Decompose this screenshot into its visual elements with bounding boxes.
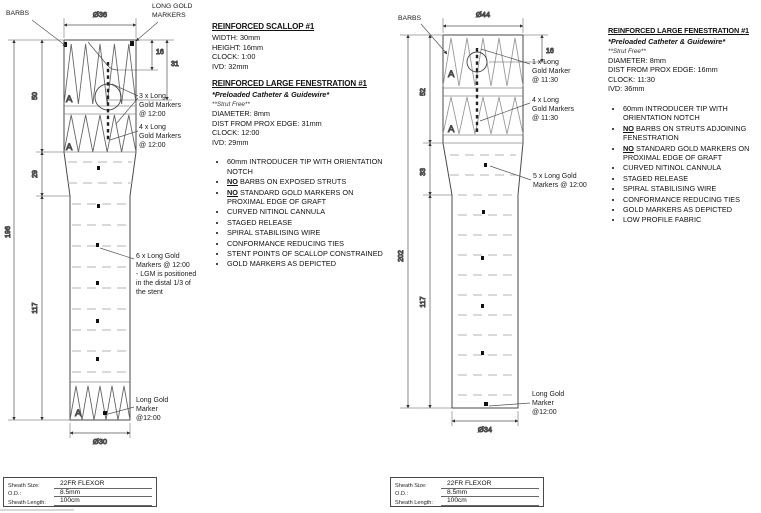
annotation-1x-marker: 1 x Long Gold Marker @ 11:30: [532, 58, 571, 85]
scallop-spec-title: REINFORCED SCALLOP #1: [212, 22, 392, 31]
dim-fen-height: 16: [546, 48, 554, 55]
right-gold-markers: [481, 163, 488, 406]
spec-line: DIAMETER: 8mm: [212, 109, 392, 119]
spec-line: IVD: 29mm: [212, 138, 392, 148]
dim-right-bottom-diameter: Ø34: [478, 425, 492, 434]
left-spec-block: REINFORCED SCALLOP #1 WIDTH: 30mmHEIGHT:…: [212, 22, 392, 270]
sheath-row-value: 100cm: [54, 497, 152, 506]
strut-label-a: A: [448, 124, 455, 135]
right-fenestration-spec-title: REINFORCED LARGE FENESTRATION #1: [608, 26, 760, 35]
sheath-table-row: Sheath Length: 100cm: [8, 497, 152, 506]
annotation-5x-markers: 5 x Long Gold Markers @ 12:00: [533, 172, 587, 190]
feature-bullet: NO STANDARD GOLD MARKERS ON PROXIMAL EDG…: [227, 188, 392, 207]
dim-right-seg117: 117: [420, 296, 427, 307]
annotation-3x-markers: 3 x Long Gold Markers @ 12:00: [139, 92, 181, 119]
sheath-row-value: 22FR FLEXOR: [441, 480, 539, 489]
feature-bullet: STENT POINTS OF SCALLOP CONSTRAINED: [227, 249, 392, 258]
right-spec-block: REINFORCED LARGE FENESTRATION #1 *Preloa…: [608, 26, 760, 226]
feature-bullet: GOLD MARKERS AS DEPICTED: [227, 259, 392, 268]
annotation-4x-markers: 4 x Long Gold Markers @ 12:00: [139, 123, 181, 150]
dim-left-seg29: 29: [32, 170, 39, 178]
dim-left-seg117: 117: [32, 302, 39, 313]
feature-bullet: NO BARBS ON STRUTS ADJOINING FENESTRATIO…: [623, 124, 760, 143]
right-fenestration-spec-lines: DIAMETER: 8mmDIST FROM PROX EDGE: 16mmCL…: [608, 56, 760, 94]
sheath-table-row: O.D.: 8.5mm: [395, 489, 539, 498]
dim-left-bottom-diameter: Ø30: [93, 437, 107, 446]
left-barbs-label: BARBS: [6, 10, 29, 19]
dim-right-seg52: 52: [420, 88, 427, 96]
sheath-row-value: 100cm: [441, 497, 539, 506]
feature-bullet: CONFORMANCE REDUCING TIES: [623, 195, 760, 204]
feature-bullet: GOLD MARKERS AS DEPICTED: [623, 205, 760, 214]
preloaded-note: *Preloaded Catheter & Guidewire*: [608, 37, 760, 47]
strut-label-a: A: [66, 142, 73, 153]
strut-label-a: A: [448, 69, 455, 80]
sheath-table-row: Sheath Size: 22FR FLEXOR: [395, 480, 539, 489]
feature-bullet: 60mm INTRODUCER TIP WITH ORIENTATION NOT…: [227, 157, 392, 176]
spec-line: CLOCK: 1:00: [212, 52, 392, 62]
spec-line: DIST FROM PROX EDGE: 16mm: [608, 65, 760, 75]
annotation-6x-markers: 6 x Long Gold Markers @ 12:00 - LGM is p…: [136, 252, 196, 297]
spec-line: WIDTH: 30mm: [212, 33, 392, 43]
spec-line: DIAMETER: 8mm: [608, 56, 760, 66]
left-leader-lines: [32, 20, 158, 414]
body-stent-dashes: [68, 162, 132, 372]
spec-line: CLOCK: 12:00: [212, 128, 392, 138]
sheath-row-value: 8.5mm: [441, 489, 539, 498]
feature-bullet: LOW PROFILE FABRIC: [623, 215, 760, 224]
dim-right-seg33: 33: [420, 168, 427, 176]
left-gold-markers: [64, 41, 134, 415]
strut-free-note: **Strut Free**: [608, 47, 760, 56]
dim-left-seg50: 50: [32, 92, 39, 100]
sheath-row-label: Sheath Length:: [395, 500, 441, 506]
spec-line: IVD: 36mm: [608, 84, 760, 94]
left-stent-drawing: Ø36 16 31 50 29 196 117 Ø30 A A A: [5, 10, 179, 446]
left-dimensions: [8, 18, 174, 438]
strut-label-a: A: [75, 408, 82, 419]
spec-line: IVD: 32mm: [212, 62, 392, 72]
left-feature-bullets: 60mm INTRODUCER TIP WITH ORIENTATION NOT…: [212, 157, 392, 268]
sheath-table-row: O.D.: 8.5mm: [8, 489, 152, 498]
right-sheath-table: Sheath Size: 22FR FLEXOR O.D.: 8.5mm She…: [390, 477, 544, 507]
feature-bullet: STAGED RELEASE: [623, 174, 760, 183]
right-stent-drawing: Ø44 16 52 33 202 117 Ø34 A A: [398, 10, 554, 434]
annotation-left-distal-marker: Long Gold Marker @12:00: [136, 396, 168, 423]
spec-line: DIST FROM PROX EDGE: 31mm: [212, 119, 392, 129]
sheath-row-value: 8.5mm: [54, 489, 152, 498]
dim-right-overall: 202: [398, 250, 405, 262]
sheath-table-row: Sheath Size: 22FR FLEXOR: [8, 480, 152, 489]
body-stent-dashes: [450, 155, 516, 395]
preloaded-note: *Preloaded Catheter & Guidewire*: [212, 90, 392, 100]
feature-bullet: NO BARBS ON EXPOSED STRUTS: [227, 177, 392, 186]
sheath-row-value: 22FR FLEXOR: [54, 480, 152, 489]
right-feature-bullets: 60mm INTRODUCER TIP WITH ORIENTATION NOT…: [608, 104, 760, 225]
strut-label-a: A: [66, 94, 73, 105]
sheath-row-label: Sheath Size:: [8, 483, 54, 489]
feature-bullet: STAGED RELEASE: [227, 218, 392, 227]
feature-bullet: SPIRAL STABILISING WIRE: [623, 184, 760, 193]
feature-bullet: CURVED NITINOL CANNULA: [623, 163, 760, 172]
dim-left-overall: 196: [5, 226, 12, 238]
sheath-row-label: O.D.:: [8, 491, 54, 497]
scallop-spec-lines: WIDTH: 30mmHEIGHT: 16mmCLOCK: 1:00IVD: 3…: [212, 33, 392, 71]
sheath-row-label: O.D.:: [395, 491, 441, 497]
sheath-table-row: Sheath Length: 100cm: [395, 497, 539, 506]
left-proximal-stent-zigzag: [64, 44, 136, 152]
dim-scallop-height: 16: [156, 49, 164, 56]
left-fenestration-spec-title: REINFORCED LARGE FENESTRATION #1: [212, 79, 392, 88]
sheath-row-label: Sheath Size:: [395, 483, 441, 489]
drawing-sheet: Ø36 16 31 50 29 196 117 Ø30 A A A: [0, 0, 761, 513]
dim-right-top-diameter: Ø44: [476, 10, 490, 19]
feature-bullet: CURVED NITINOL CANNULA: [227, 207, 392, 216]
annotation-right-distal-marker: Long Gold Marker @12:00: [532, 390, 564, 417]
dim-left-top-diameter: Ø36: [93, 10, 107, 19]
feature-bullet: 60mm INTRODUCER TIP WITH ORIENTATION NOT…: [623, 104, 760, 123]
left-long-gold-markers-label: LONG GOLD MARKERS: [152, 3, 192, 20]
right-barbs-label: BARBS: [398, 15, 421, 24]
strut-free-note: **Strut Free**: [212, 100, 392, 109]
spec-line: CLOCK: 11:30: [608, 75, 760, 85]
sheath-row-label: Sheath Length:: [8, 500, 54, 506]
left-sheath-table: Sheath Size: 22FR FLEXOR O.D.: 8.5mm She…: [3, 477, 157, 507]
feature-bullet: NO STANDARD GOLD MARKERS ON PROXIMAL EDG…: [623, 144, 760, 163]
feature-bullet: CONFORMANCE REDUCING TIES: [227, 239, 392, 248]
feature-bullet: SPIRAL STABILISING WIRE: [227, 228, 392, 237]
dim-scallop-ivd: 31: [171, 61, 179, 68]
annotation-right-4x-markers: 4 x Long Gold Markers @ 11:30: [532, 96, 574, 123]
left-fenestration-spec-lines: DIAMETER: 8mmDIST FROM PROX EDGE: 31mmCL…: [212, 109, 392, 147]
spec-line: HEIGHT: 16mm: [212, 43, 392, 53]
